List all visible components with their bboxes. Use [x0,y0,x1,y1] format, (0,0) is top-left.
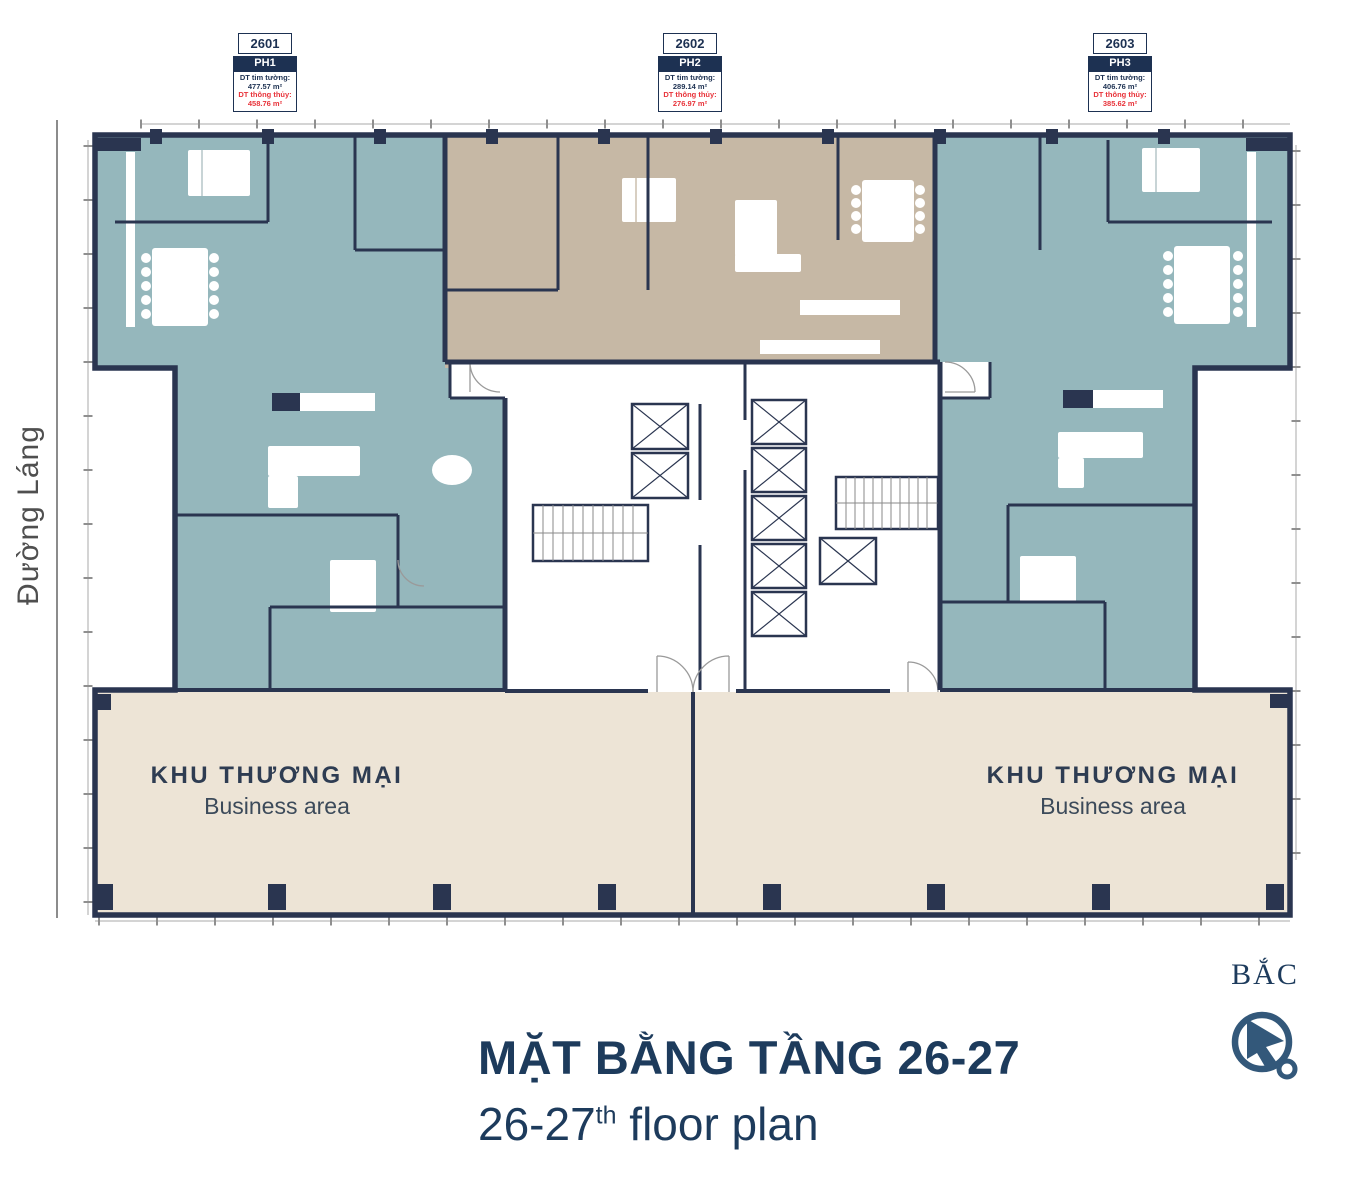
unit-number: 2602 [663,33,717,54]
compass-icon [1235,1015,1295,1077]
business-area-vi: KHU THƯƠNG MẠI [943,762,1283,790]
business-area-en: Business area [107,793,447,820]
compass-label: BẮC [1205,958,1325,992]
unit-number: 2601 [238,33,292,54]
business-area-en: Business area [943,793,1283,820]
page-subtitle: 26-27th floor plan [478,1097,1020,1151]
footer-titles: MẶT BẰNG TẦNG 26-27 26-27th floor plan [478,1030,1020,1151]
unit-ph1-wing [175,368,505,690]
floor-plan-drawing [0,0,1360,1181]
subtitle-floors: 26-27 [478,1098,596,1150]
floor-plan-page: 2601 PH1 DT tim tường: 477.57 m² DT thôn… [0,0,1360,1181]
subtitle-ordinal: th [596,1102,617,1130]
unit-name: PH2 [658,56,722,71]
unit-label-2601: 2601 PH1 DT tim tường: 477.57 m² DT thôn… [233,33,297,112]
unit-ph3-wing [940,368,1195,690]
area-net-value: 458.76 m² [234,100,296,109]
unit-areas: DT tim tường: 289.14 m² DT thông thủy: 2… [658,71,722,112]
unit-number: 2603 [1093,33,1147,54]
business-area-vi: KHU THƯƠNG MẠI [107,762,447,790]
area-net-value: 276.97 m² [659,100,721,109]
business-area-label-right: KHU THƯƠNG MẠI Business area [943,762,1283,820]
unit-areas: DT tim tường: 406.76 m² DT thông thủy: 3… [1088,71,1152,112]
unit-label-2602: 2602 PH2 DT tim tường: 289.14 m² DT thôn… [658,33,722,112]
corridor [450,362,990,398]
unit-ph2-region [445,135,935,368]
unit-areas: DT tim tường: 477.57 m² DT thông thủy: 4… [233,71,297,112]
unit-label-2603: 2603 PH3 DT tim tường: 406.76 m² DT thôn… [1088,33,1152,112]
page-title: MẶT BẰNG TẦNG 26-27 [478,1030,1020,1085]
street-label: Đường Láng [12,395,48,635]
business-area-label-left: KHU THƯƠNG MẠI Business area [107,762,447,820]
unit-name: PH1 [233,56,297,71]
area-net-value: 385.62 m² [1089,100,1151,109]
subtitle-rest: floor plan [617,1098,819,1150]
unit-name: PH3 [1088,56,1152,71]
